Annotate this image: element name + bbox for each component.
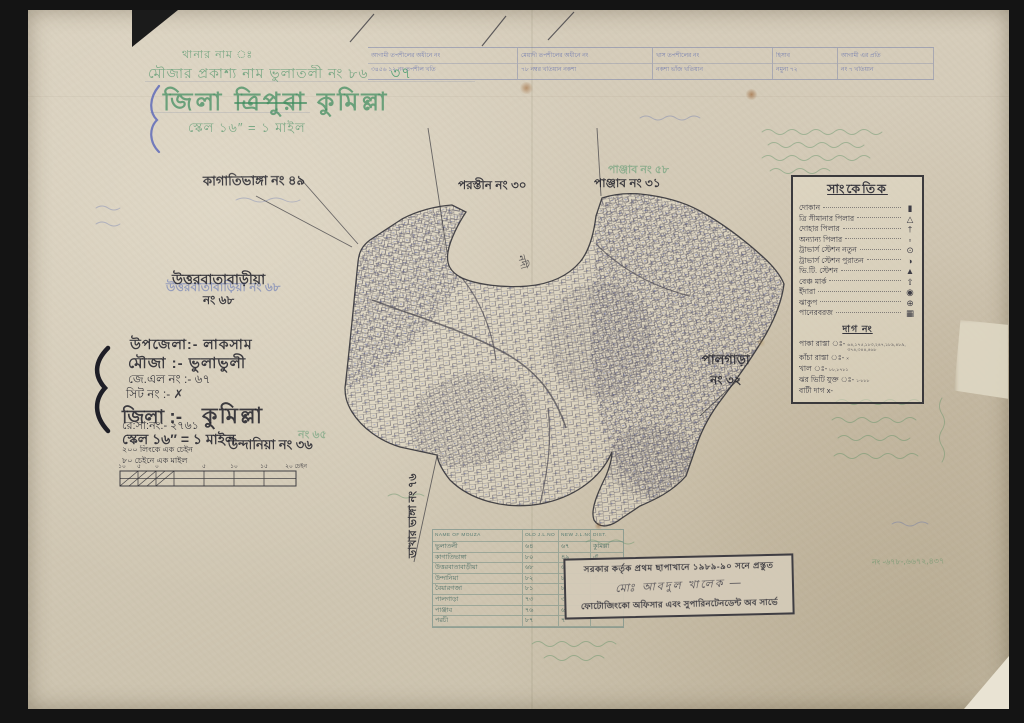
plot-number-label: খাল ঃ- bbox=[799, 363, 827, 374]
village-label-kagatibhanga: কাগাতিভাঙ্গা নং ৪৯ bbox=[203, 172, 305, 194]
legend-leader-dots bbox=[823, 207, 901, 208]
legend-item-label: ত্রি সীমানার পিলার bbox=[799, 214, 854, 225]
top-table-cell-value: নমুনা ৭২ bbox=[776, 63, 834, 77]
legend-items: দোকান ▮ ত্রি সীমানার পিলার △ দোহার পিলার… bbox=[799, 203, 916, 319]
legend-item: ঝাকুপ ⊕ bbox=[799, 298, 916, 309]
legend-item-symbol: △ bbox=[904, 214, 916, 225]
legend-leader-dots bbox=[820, 301, 901, 302]
cell-mouza-name: উন্দানিয়া bbox=[433, 574, 523, 584]
cell-mouza-name: পরচী bbox=[433, 616, 523, 626]
cell-mouza-name: পাঞ্জাব bbox=[433, 606, 523, 616]
cell-dist: কুমিল্লা bbox=[591, 542, 621, 552]
legend-item-symbol: ◑ bbox=[904, 256, 916, 267]
plot-number-items: পাকা রাস্তা ঃ- ৬৪,১৭৫,১৮৩,২৪৭,১৮৯,৪৮৯,৩৭… bbox=[799, 338, 916, 396]
scalebar-tick: ১০ bbox=[230, 464, 238, 470]
legend-leader-dots bbox=[843, 228, 901, 229]
legend-leader-dots bbox=[860, 249, 901, 250]
top-table-cell: খাস তপশীলের নং নকশা ভাঁজ খতিয়ান bbox=[653, 48, 773, 79]
legend-box: সাংকেতিক দোকান ▮ ত্রি সীমানার পিলার △ দো… bbox=[791, 175, 924, 404]
plot-number-value: ৬৪,১৭৫,১৮৩,২৪৭,১৮৯,৪৮৯,৩৭৪,৩৪৪,৪৬৮ bbox=[847, 342, 907, 352]
top-table-cell: আগামী এর প্রতি নং ৭ খতিয়ান bbox=[838, 48, 934, 79]
legend-title: সাংকেতিক bbox=[799, 181, 916, 201]
legend-item-label: পানেরবরজ bbox=[799, 308, 833, 319]
village-label-text: পালগাড়া bbox=[702, 352, 750, 367]
blue-bracket-mark bbox=[151, 86, 159, 152]
legend-item-symbol: ▮ bbox=[904, 203, 916, 214]
legend-item-label: ট্রাভার্স স্টেশন পুরাতন bbox=[799, 256, 864, 267]
legend-item-symbol: ◉ bbox=[904, 287, 916, 298]
legend-leader-dots bbox=[836, 312, 901, 313]
col-header-name: NAME OF MOUZA bbox=[433, 530, 523, 541]
plot-number-label: পাকা রাস্তা ঃ- bbox=[799, 338, 845, 349]
plot-number-item: খাল ঃ- ৮৮,৮৭৮১ bbox=[799, 363, 916, 374]
legend-item-symbol: ▫ bbox=[904, 235, 916, 246]
plot-number-value: ১-৮৮৮ bbox=[856, 378, 869, 383]
district-value: কুমিল্লা bbox=[202, 403, 264, 428]
cell-old-jl: ৮৭ bbox=[523, 616, 559, 626]
legend-item: দোকান ▮ bbox=[799, 203, 916, 214]
village-label-uttarbatabaria: উত্তরবাতাবাড়ীয়া নং ৬৮ bbox=[172, 268, 265, 312]
legend-item-symbol: ⊙ bbox=[904, 245, 916, 256]
legend-leader-dots bbox=[841, 270, 901, 271]
legend-item-symbol: ▦ bbox=[904, 308, 916, 319]
cell-old-jl: ৮১ bbox=[523, 584, 559, 594]
scalebar-tick: ১৫ bbox=[260, 464, 268, 470]
col-header-new-jl: NEW J.L.NO bbox=[559, 530, 591, 541]
legend-item-label: অন্যান্য পিলার bbox=[799, 235, 842, 246]
village-label-text: উত্তরবাতাবাড়ীয়া bbox=[172, 271, 265, 287]
plot-number-label: ঝর ভিটি যুক্ত ঃ- bbox=[799, 374, 854, 385]
top-table-cell: আগামী তপশীলের অধীনে নং ৩৪৫৬ ১২ নং তপশীল … bbox=[368, 48, 518, 79]
mouza-table-row: ভুলাতলী ৬৪ ৬৭ কুমিল্লা bbox=[433, 542, 623, 553]
legend-item-label: ইঁদারা bbox=[799, 287, 815, 298]
col-header-dist: DIST. bbox=[591, 530, 621, 541]
handwritten-number-annotation: নং -৬৭৮-,৬৬৭২,৪৩৭ bbox=[872, 555, 944, 569]
legend-leader-dots bbox=[867, 259, 901, 260]
legend-item-label: দোহার পিলার bbox=[799, 224, 840, 235]
cell-mouza-name: পালগাড়া bbox=[433, 595, 523, 605]
scalebar-tick: ২০ চেইন bbox=[285, 463, 307, 470]
top-annotation-table: আগামী তপশীলের অধীনে নং ৩৪৫৬ ১২ নং তপশীল … bbox=[368, 47, 934, 80]
village-label-number: নং ৬৮ bbox=[172, 292, 265, 312]
top-table-cell-header: খাস তপশীলের নং bbox=[656, 49, 769, 63]
cell-old-jl: ৭৬ bbox=[523, 606, 559, 616]
village-label-number: নং ৩২ bbox=[702, 372, 750, 392]
legend-leader-dots bbox=[857, 217, 901, 218]
plot-number-item: বাটী দাগ x- bbox=[799, 385, 916, 396]
reprint-stamp-box: সরকার কর্তৃক প্রথম ছাপাখানে ১৯৮৯-৯০ সনে … bbox=[563, 553, 794, 619]
plot-number-value: × bbox=[846, 356, 849, 361]
top-table-cell-header: হিসাব bbox=[776, 49, 834, 63]
village-label-panjab: পাঞ্জাব নং ৩১ bbox=[594, 175, 661, 195]
mouza-name-text: মৌজার প্রকাশ্য নাম ভুলাতলী নং ৮৬ bbox=[148, 65, 368, 81]
cell-old-jl: ৬৪ bbox=[523, 542, 559, 552]
scanned-mouza-map-sheet: ১০ ৫ ০ ৫ ১০ ১৫ ২০ চেইন bbox=[0, 0, 1024, 723]
legend-item: ট্রাভার্স স্টেশন পুরাতন ◑ bbox=[799, 256, 916, 267]
district-name: কুমিল্লা bbox=[317, 88, 390, 116]
legend-item: পানেরবরজ ▦ bbox=[799, 308, 916, 319]
top-table-cell-header: মেয়াদী তপশীলের অধীনে নং bbox=[521, 49, 649, 63]
legend-item-label: ভি.টি. স্টেশন bbox=[799, 266, 838, 277]
cell-old-jl: ৮২ bbox=[523, 574, 559, 584]
cell-old-jl: ৭৩ bbox=[523, 595, 559, 605]
plot-number-label: কাঁচা রাস্তা ঃ- bbox=[799, 352, 844, 363]
legend-item: দোহার পিলার † bbox=[799, 224, 916, 235]
legend-item: ইঁদারা ◉ bbox=[799, 287, 916, 298]
ruled-line bbox=[150, 112, 310, 113]
legend-item-symbol: ⊕ bbox=[904, 298, 916, 309]
header-scale-line: স্কেল ১৬″ = ১ মাইল bbox=[188, 119, 306, 140]
scalebar-tick: ৫ bbox=[202, 464, 206, 470]
legend-leader-dots bbox=[818, 291, 901, 292]
plot-number-label: বাটী দাগ x- bbox=[799, 385, 833, 396]
legend-item: ত্রি সীমানার পিলার △ bbox=[799, 214, 916, 225]
plot-number-item: কাঁচা রাস্তা ঃ- × bbox=[799, 352, 916, 363]
margin-brace-mark bbox=[97, 348, 108, 431]
cell-old-jl: ৮০ bbox=[523, 553, 559, 563]
legend-item: ভি.টি. স্টেশন ▲ bbox=[799, 266, 916, 277]
village-label-palgara: পালগাড়া নং ৩২ bbox=[702, 351, 750, 392]
legend-item-label: ঝাকুপ bbox=[799, 298, 817, 309]
legend-leader-dots bbox=[829, 280, 901, 281]
top-table-cell-value: নকশা ভাঁজ খতিয়ান bbox=[656, 63, 769, 77]
legend-item-label: বেঞ্চ মার্ক bbox=[799, 277, 826, 288]
legend-item-symbol: ▲ bbox=[904, 266, 916, 277]
cell-mouza-name: উত্তরবাতাবাড়ীয়া bbox=[433, 563, 523, 573]
cell-mouza-name: কাগাতিভাঙ্গা bbox=[433, 553, 523, 563]
legend-item: ট্রাভার্স স্টেশন নতুন ⊙ bbox=[799, 245, 916, 256]
legend-item-symbol: ⇧ bbox=[904, 277, 916, 288]
village-label-dakhar-vertical: ডাখার ভাঙ্গা নং ৭৬ bbox=[404, 474, 423, 558]
legend-leader-dots bbox=[845, 238, 901, 239]
pen-slash-marks bbox=[350, 12, 574, 46]
plot-number-value: ৮৮,৮৭৮১ bbox=[829, 367, 848, 372]
top-table-cell-value: নং ৭ খতিয়ান bbox=[841, 63, 930, 77]
chain-conversion-line-2: ৮০ চেইনে এক মাইল bbox=[122, 455, 187, 468]
top-table-cell-value: ৭৮ নম্বর খতিয়ান নকশা bbox=[521, 63, 649, 77]
village-label-porotin: পরস্তীন নং ৩০ bbox=[458, 177, 527, 197]
legend-item: বেঞ্চ মার্ক ⇧ bbox=[799, 277, 916, 288]
cell-old-jl: ৬৮ bbox=[523, 563, 559, 573]
legend-item-label: দোকান bbox=[799, 203, 820, 214]
plot-number-item: পাকা রাস্তা ঃ- ৬৪,১৭৫,১৮৩,২৪৭,১৮৯,৪৮৯,৩৭… bbox=[799, 338, 916, 352]
legend-item-label: ট্রাভার্স স্টেশন নতুন bbox=[799, 245, 857, 256]
plot-number-item: ঝর ভিটি যুক্ত ঃ- ১-৮৮৮ bbox=[799, 374, 916, 385]
col-header-old-jl: OLD J.L.NO bbox=[523, 530, 559, 541]
plot-number-section-title: দাগ নং bbox=[799, 323, 916, 338]
mouza-table-header-row: NAME OF MOUZA OLD J.L.NO NEW J.L.NO DIST… bbox=[433, 530, 623, 542]
ruled-line bbox=[145, 81, 475, 82]
top-table-cell-value: ৩৪৫৬ ১২ নং তপশীল খতি bbox=[371, 63, 514, 77]
cell-new-jl: ৬৭ bbox=[559, 542, 591, 552]
top-table-cell: হিসাব নমুনা ৭২ bbox=[773, 48, 838, 79]
cell-mouza-name: বৈয়ারগজা bbox=[433, 584, 523, 594]
top-table-cell: মেয়াদী তপশীলের অধীনে নং ৭৮ নম্বর খতিয়া… bbox=[518, 48, 653, 79]
cell-mouza-name: ভুলাতলী bbox=[433, 542, 523, 552]
top-table-cell-header: আগামী তপশীলের অধীনে নং bbox=[371, 49, 514, 63]
legend-item-symbol: † bbox=[904, 224, 916, 235]
legend-item: অন্যান্য পিলার ▫ bbox=[799, 235, 916, 246]
top-table-cell-header: আগামী এর প্রতি bbox=[841, 49, 930, 63]
village-label-undania-green: নং ৬৫ bbox=[298, 426, 327, 445]
